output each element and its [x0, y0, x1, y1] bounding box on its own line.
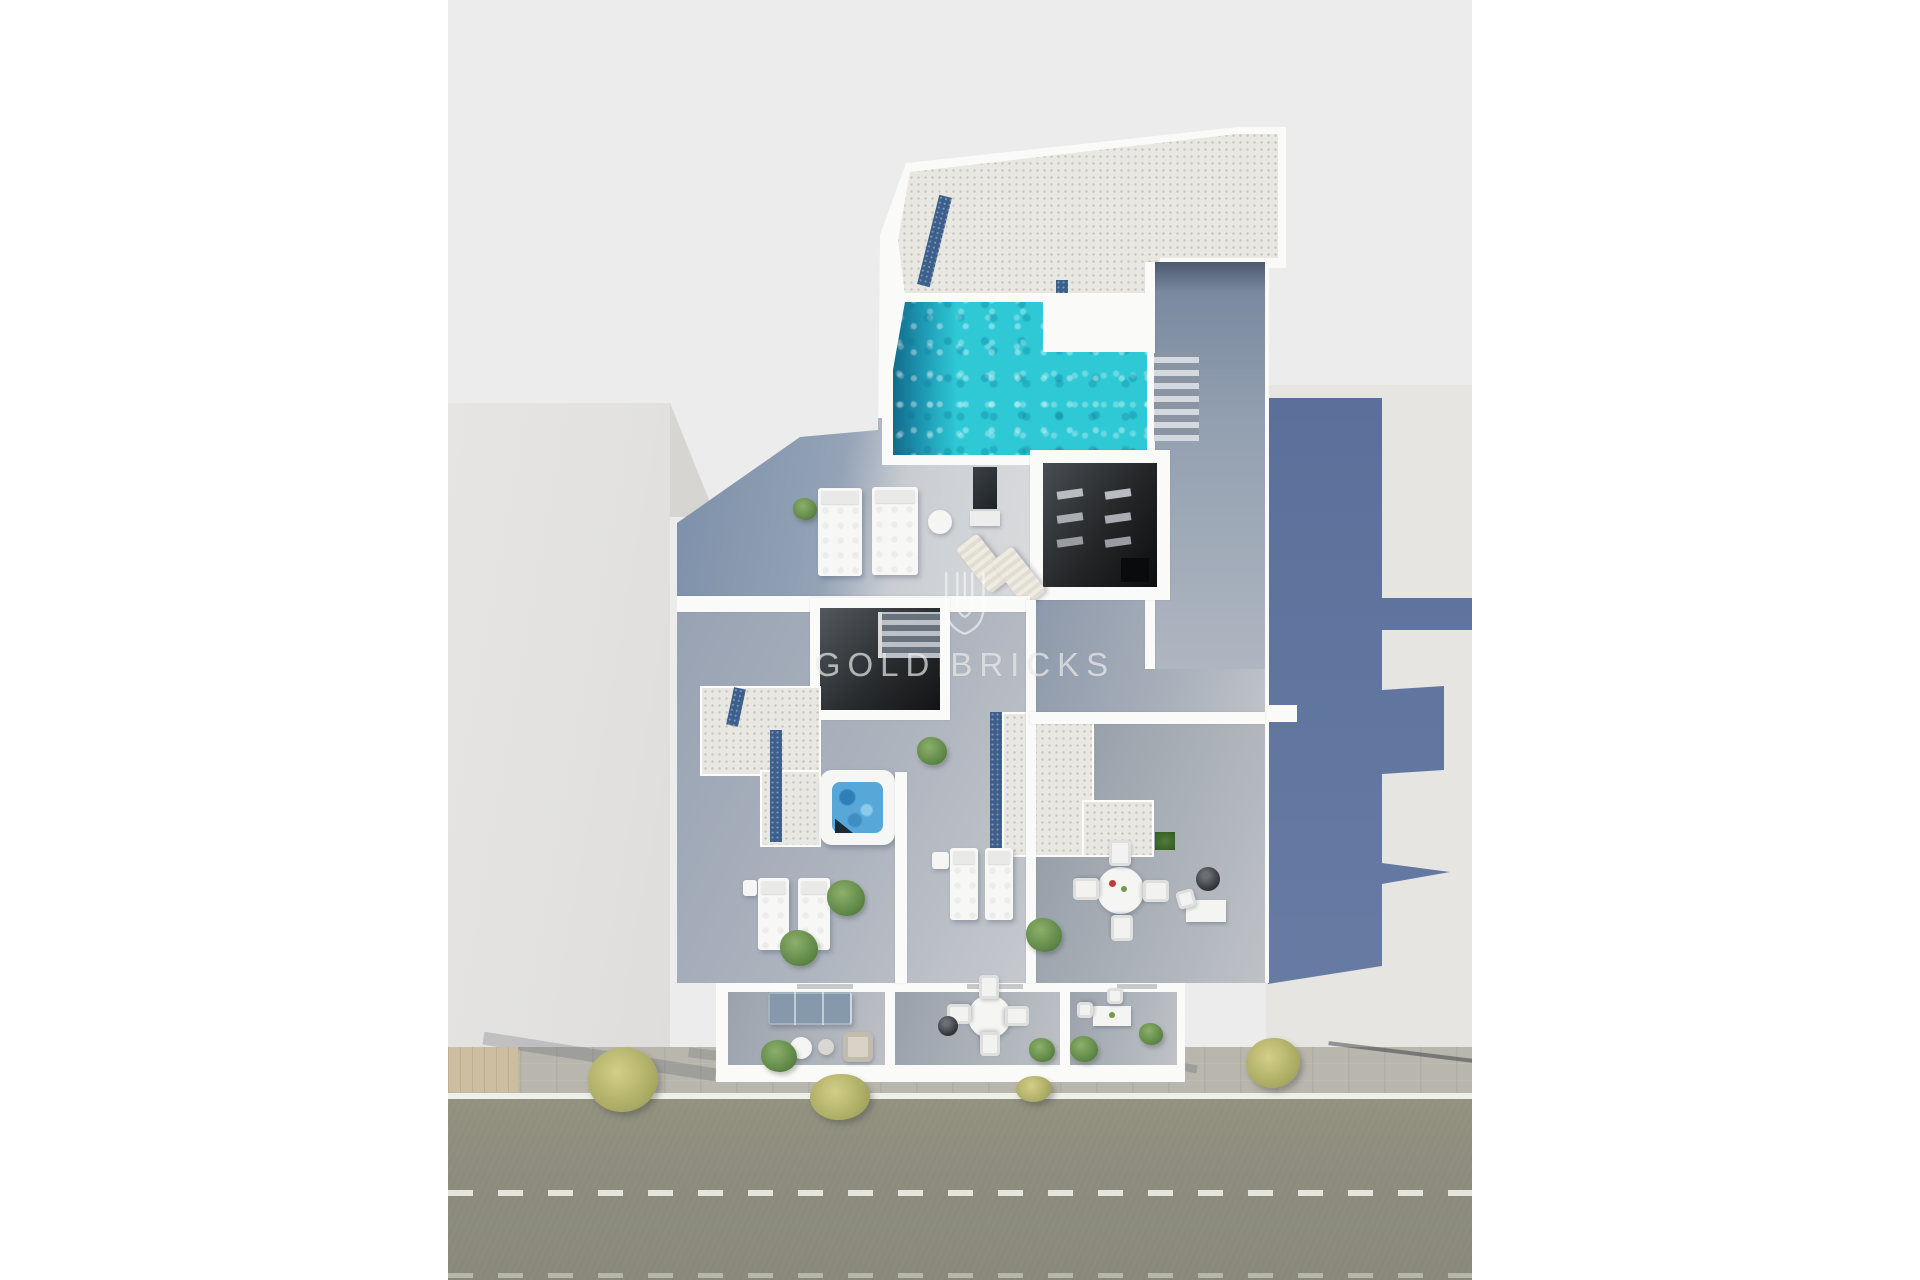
bistro-chair	[1077, 1002, 1093, 1018]
balcony-tree	[761, 1040, 797, 1072]
neighbor-building-roof-slope	[670, 403, 716, 517]
table-decor-red	[1109, 880, 1116, 887]
road-center-dashed-line	[448, 1190, 1472, 1196]
bistro-chair	[1107, 988, 1123, 1004]
dining-chair	[980, 1032, 1000, 1056]
table-decor-green	[1121, 886, 1127, 892]
bed	[872, 487, 918, 575]
dining-chair	[1005, 1006, 1029, 1026]
armchair	[843, 1032, 873, 1062]
dining-chair	[1109, 840, 1131, 866]
dark-planter	[938, 1016, 958, 1036]
staircase	[1147, 353, 1199, 441]
potted-plant	[1026, 918, 1062, 952]
shower-base	[970, 511, 1000, 526]
pebble-strip	[770, 730, 782, 842]
potted-plant	[917, 737, 947, 765]
dining-chair	[979, 975, 999, 999]
potted-plant	[827, 880, 865, 916]
bed	[985, 848, 1013, 920]
balcony-bush	[1029, 1038, 1055, 1062]
page: GOLD BRICKS	[0, 0, 1920, 1280]
bed	[950, 848, 978, 920]
dining-chair	[1073, 878, 1099, 900]
road-dashed-line-bottom	[448, 1273, 1472, 1278]
dark-planter	[1196, 867, 1220, 891]
side-table-round	[932, 852, 949, 869]
gravel-planter-right	[1002, 712, 1094, 857]
side-table-round	[928, 510, 952, 534]
potted-plant	[793, 498, 817, 520]
grass-planter	[1155, 832, 1175, 850]
render-area: GOLD BRICKS	[448, 0, 1472, 1280]
neighbor-building-facade	[448, 1047, 518, 1092]
sofa	[768, 992, 852, 1025]
balcony-bush	[1070, 1036, 1098, 1062]
main-building	[677, 118, 1305, 1082]
interior-wall	[1030, 712, 1265, 724]
shower-panel	[973, 467, 997, 509]
corridor-shadow	[1155, 262, 1265, 292]
interior-wall	[895, 772, 907, 983]
dining-chair	[1143, 880, 1169, 902]
coffee-table-round	[818, 1039, 834, 1055]
side-table-round	[743, 880, 757, 896]
table-decor-green	[1109, 1012, 1115, 1018]
roof-corridor-deck	[1155, 262, 1265, 669]
gravel-planter-left	[700, 686, 821, 776]
balcony-bush	[1139, 1023, 1163, 1045]
sliding-door-track	[1117, 984, 1157, 989]
stairwell-steps	[878, 612, 940, 658]
sliding-door-track	[797, 984, 853, 989]
roof-room-void-corner	[1121, 558, 1149, 582]
pebble-strip	[990, 712, 1002, 853]
bed	[818, 488, 862, 576]
potted-plant	[780, 930, 818, 966]
dining-chair	[1111, 915, 1133, 941]
neighbor-building-roof	[448, 403, 670, 1047]
